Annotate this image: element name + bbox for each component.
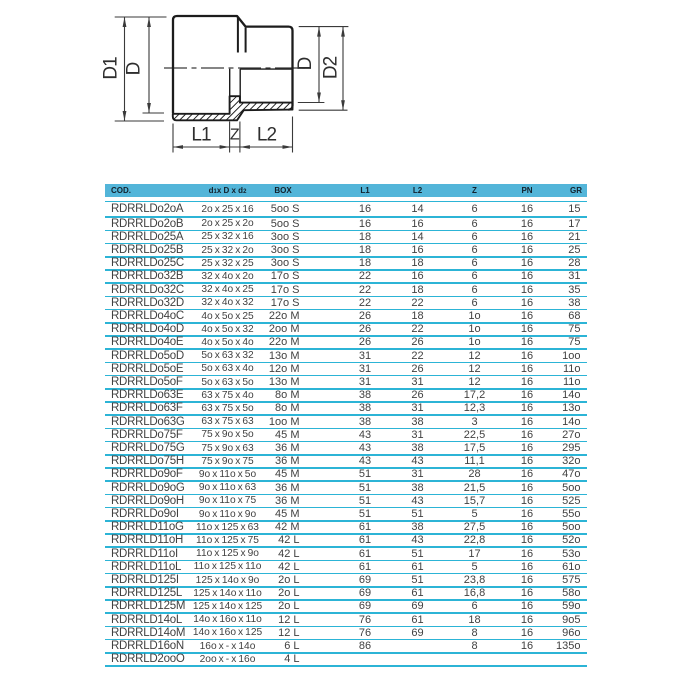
- svg-text:D2: D2: [321, 56, 342, 79]
- svg-text:D1: D1: [101, 57, 122, 80]
- svg-text:D: D: [124, 62, 145, 76]
- svg-text:L1: L1: [191, 125, 211, 146]
- svg-text:L2: L2: [257, 125, 277, 146]
- svg-text:Z: Z: [230, 127, 240, 144]
- svg-text:D: D: [295, 57, 316, 71]
